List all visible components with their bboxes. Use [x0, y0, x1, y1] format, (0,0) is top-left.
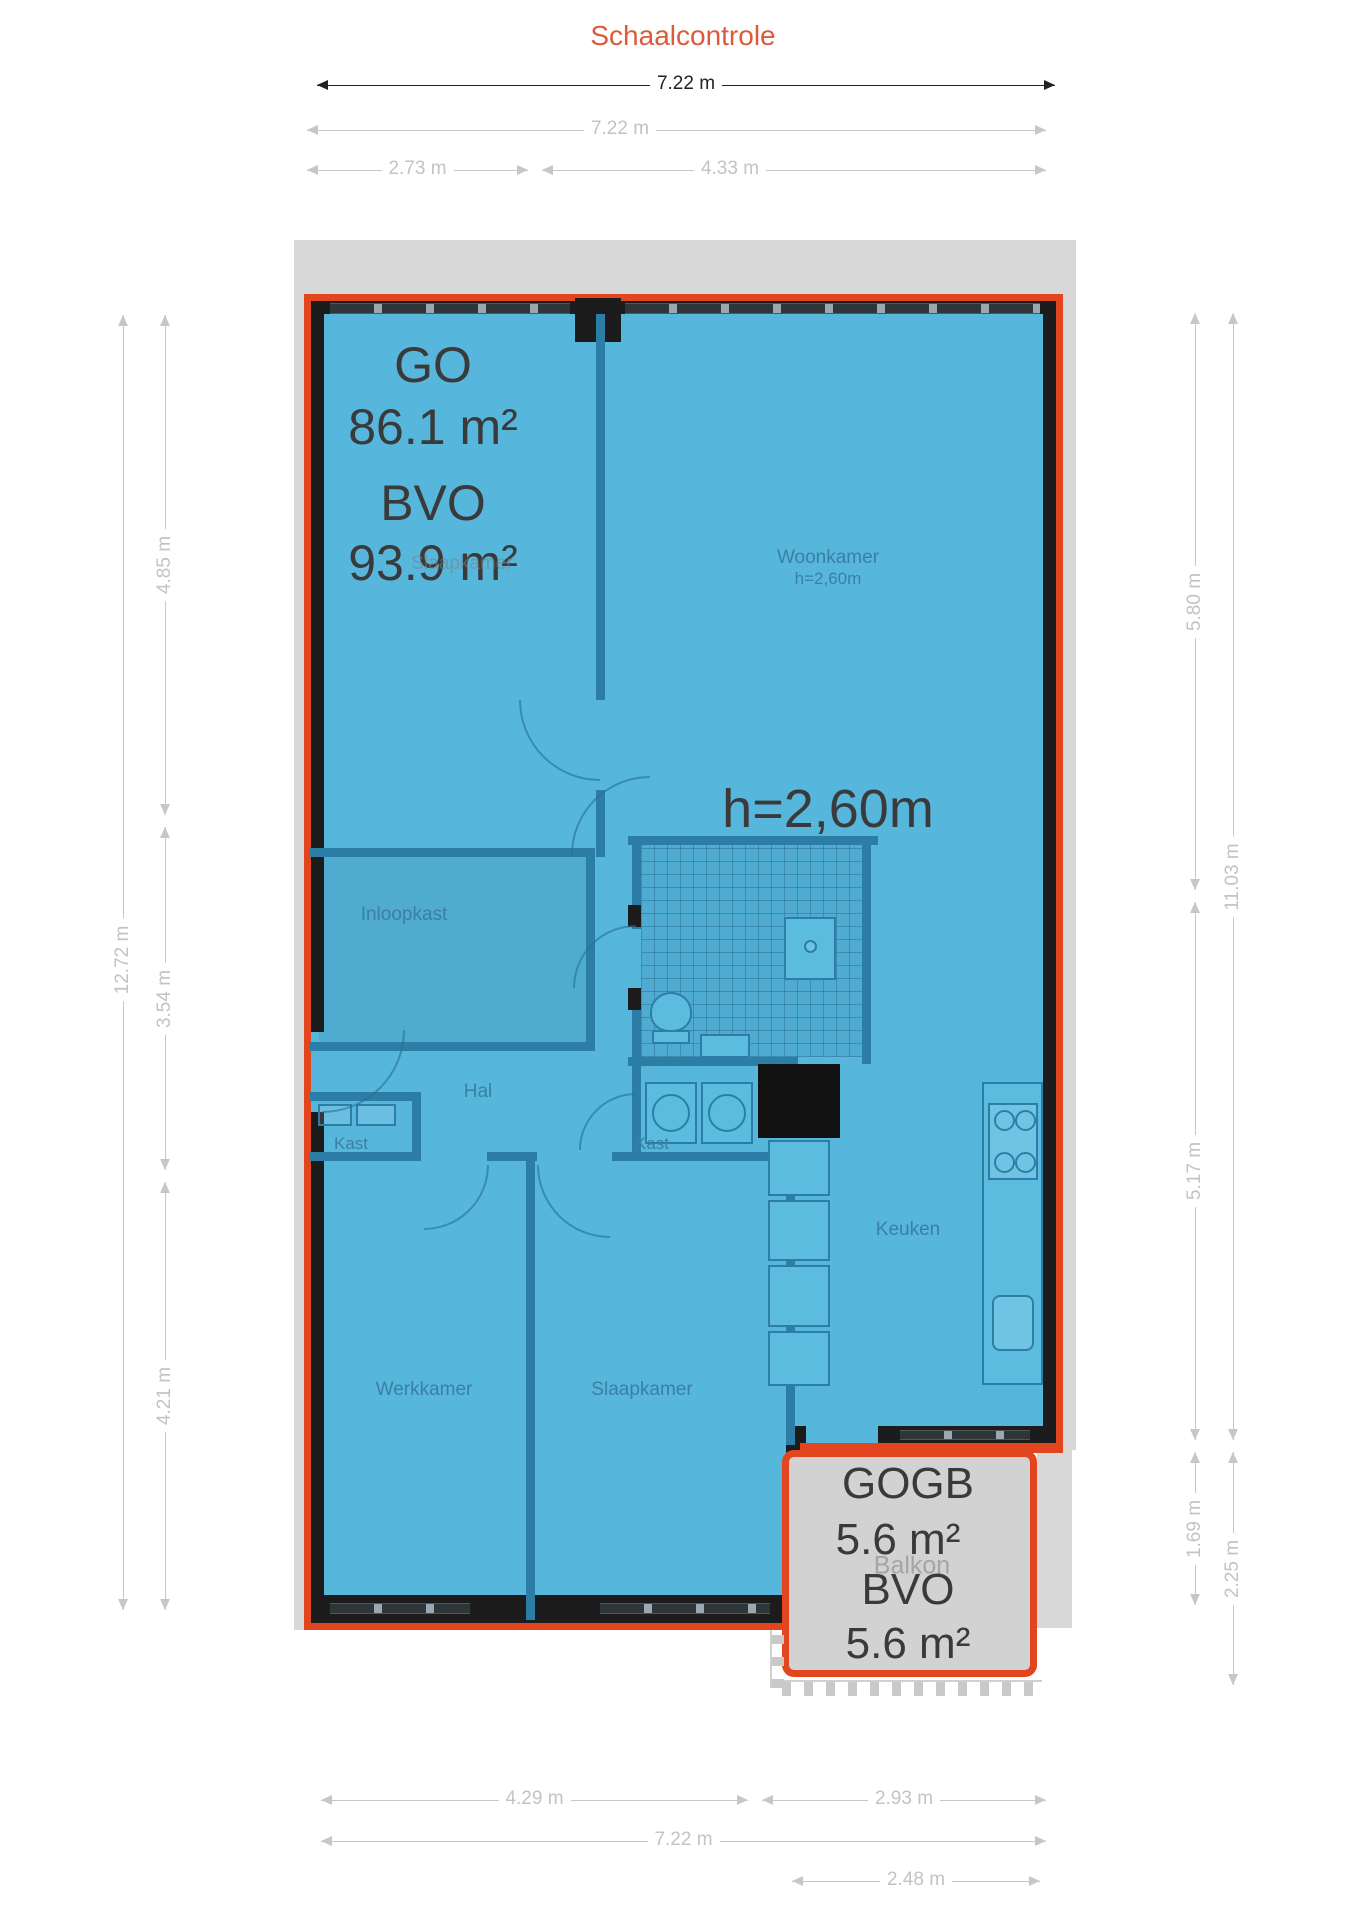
room-label-balkon-ghost: Balkon — [874, 1552, 950, 1581]
room-label-slaapkamer-ghost: Slaapkamer — [411, 553, 512, 575]
dimension-top-right-part — [542, 170, 1046, 171]
window-top-right — [625, 303, 1040, 314]
dimension-arrow-icon — [762, 1795, 773, 1805]
outline-left — [304, 294, 311, 1630]
room-label-kast-left: Kast — [334, 1134, 368, 1154]
dimension-arrow-icon — [160, 315, 170, 326]
outline-top — [304, 294, 1063, 301]
dimension-arrow-icon — [321, 1836, 332, 1846]
dimension-arrow-icon — [1035, 125, 1046, 135]
dimension-arrow-icon — [1035, 165, 1046, 175]
stove-burner-icon — [1015, 1152, 1036, 1173]
dimension-arrow-icon — [160, 1599, 170, 1610]
toilet-tank — [652, 1030, 690, 1044]
dimension-arrow-icon — [160, 827, 170, 838]
gogb-label: GOGB — [842, 1462, 974, 1506]
page-title: Schaalcontrole — [590, 20, 775, 52]
dimension-arrow-icon — [1228, 1429, 1238, 1440]
stove-burner-icon — [1015, 1110, 1036, 1131]
dimension-arrow-icon — [1228, 313, 1238, 324]
iwall-closet-left-top — [310, 1092, 420, 1101]
dimension-arrow-icon — [1029, 1876, 1040, 1886]
window-kitchen — [900, 1430, 1030, 1440]
window-bottom-left — [330, 1603, 470, 1614]
sink-icon — [992, 1295, 1034, 1351]
dimension-arrow-icon — [321, 1795, 332, 1805]
shower-drain — [804, 940, 817, 953]
iwall-livingroom-divider-low — [596, 790, 605, 857]
dimension-label-left-seg-3: 4.21 m — [154, 1360, 176, 1432]
dimension-label-bottom-left-part: 4.29 m — [498, 1788, 570, 1810]
stove-burner-icon — [994, 1110, 1015, 1131]
closet-shelf-2 — [356, 1104, 396, 1126]
outline-lower-bottom — [304, 1623, 807, 1630]
stove-icon — [988, 1103, 1038, 1180]
room-label-hal: Hal — [464, 1081, 493, 1103]
iwall-bedroom-divider — [526, 1161, 535, 1620]
dimension-arrow-icon — [792, 1876, 803, 1886]
room-label-kast-center: Kast — [635, 1134, 669, 1154]
kitchen-cabinet-1 — [768, 1140, 830, 1196]
kitchen-cabinet-2 — [768, 1200, 830, 1261]
dimension-arrow-icon — [160, 804, 170, 815]
dimension-arrow-icon — [1190, 1452, 1200, 1463]
go-label: GO — [394, 340, 472, 390]
dimension-label-right-balcony: 2.25 m — [1222, 1532, 1244, 1604]
dimension-label-right-seg-2: 5.17 m — [1184, 1135, 1206, 1207]
dimension-arrow-icon — [1035, 1795, 1046, 1805]
iwall-livingroom-divider — [596, 314, 605, 700]
dryer-drum-icon — [708, 1094, 746, 1132]
dimension-label-left-seg-1: 4.85 m — [154, 529, 176, 601]
inloopkast-shading — [319, 857, 586, 1042]
window-bottom-center — [600, 1603, 770, 1614]
iwall-bath-right — [862, 845, 871, 1064]
dimension-arrow-icon — [160, 1182, 170, 1193]
go-value: 86.1 m² — [348, 402, 518, 452]
iwall-inloopkast-bottom — [310, 1042, 594, 1051]
room-sublabel-woonkamer: h=2,60m — [777, 569, 879, 589]
dimension-arrow-icon — [1228, 1452, 1238, 1463]
balcony-railing-left — [770, 1630, 784, 1688]
toilet-icon — [650, 992, 692, 1032]
window-top-left — [330, 303, 570, 314]
bvo-label: BVO — [380, 478, 486, 528]
dimension-label-right-seg-1: 5.80 m — [1184, 565, 1206, 637]
iwall-inloopkast-right — [586, 848, 595, 1051]
wall-right — [1043, 301, 1056, 1443]
dimension-label-bottom-overall: 7.22 m — [647, 1829, 719, 1851]
balcony-railing-bottom — [782, 1680, 1042, 1696]
dimension-arrow-icon — [737, 1795, 748, 1805]
iwall-closet-left-side — [412, 1092, 421, 1161]
dimension-arrow-icon — [317, 80, 328, 90]
dimension-arrow-icon — [1190, 1594, 1200, 1605]
dimension-label-top-overall: 7.22 m — [584, 118, 656, 140]
dimension-arrow-icon — [1190, 902, 1200, 913]
dimension-label-top-right-part: 4.33 m — [694, 158, 766, 180]
dimension-label-right-seg-3: 1.69 m — [1184, 1492, 1206, 1564]
dimension-label-top-overall-dark: 7.22 m — [650, 73, 722, 95]
dimension-arrow-icon — [118, 315, 128, 326]
balcony-door-opening — [806, 1426, 878, 1443]
room-label-inloopkast: Inloopkast — [361, 904, 448, 926]
floorplan-page: Schaalcontrole — [0, 0, 1358, 1920]
dimension-top-overall — [307, 130, 1046, 131]
room-label-slaapkamer: Slaapkamer — [591, 1379, 692, 1401]
kitchen-cabinet-3 — [768, 1265, 830, 1327]
room-label-woonkamer: Woonkamerh=2,60m — [777, 547, 879, 589]
dimension-arrow-icon — [1035, 1836, 1046, 1846]
room-label-keuken: Keuken — [876, 1219, 940, 1241]
dimension-label-bottom-balcony: 2.48 m — [880, 1869, 952, 1891]
dimension-arrow-icon — [307, 165, 318, 175]
dimension-label-bottom-right-part: 2.93 m — [868, 1788, 940, 1810]
washer-drum-icon — [652, 1094, 690, 1132]
dimension-arrow-icon — [1228, 1674, 1238, 1685]
wall-lower-left — [311, 1430, 324, 1623]
washbasin-icon — [700, 1034, 750, 1058]
dimension-arrow-icon — [1190, 313, 1200, 324]
dimension-arrow-icon — [1190, 1429, 1200, 1440]
underlay-right-strip — [1063, 295, 1076, 1450]
dimension-arrow-icon — [307, 125, 318, 135]
underlay-top-band — [294, 240, 1076, 295]
stove-burner-icon — [994, 1152, 1015, 1173]
dimension-label-left-overall: 12.72 m — [112, 919, 134, 1002]
room-label-werkkamer: Werkkamer — [376, 1379, 473, 1401]
dimension-arrow-icon — [542, 165, 553, 175]
dryer-icon — [701, 1082, 753, 1144]
dimension-arrow-icon — [160, 1159, 170, 1170]
underlay-balcony-side — [1037, 1450, 1072, 1628]
dimension-arrow-icon — [1190, 879, 1200, 890]
outline-right — [1056, 294, 1063, 1453]
ceiling-height-note: h=2,60m — [722, 782, 934, 836]
shaft — [758, 1064, 840, 1138]
dimension-label-top-left-part: 2.73 m — [381, 158, 453, 180]
dimension-arrow-icon — [1044, 80, 1055, 90]
gogb-bvo-value: 5.6 m² — [846, 1622, 971, 1666]
closet-shelf-1 — [318, 1104, 352, 1126]
dimension-arrow-icon — [118, 1599, 128, 1610]
dimension-label-right-overall: 11.03 m — [1222, 836, 1244, 917]
dimension-arrow-icon — [517, 165, 528, 175]
dimension-label-left-seg-2: 3.54 m — [154, 962, 176, 1034]
iwall-hall-b — [487, 1152, 537, 1161]
kitchen-cabinet-4 — [768, 1331, 830, 1386]
iwall-inloopkast-top — [310, 848, 594, 857]
